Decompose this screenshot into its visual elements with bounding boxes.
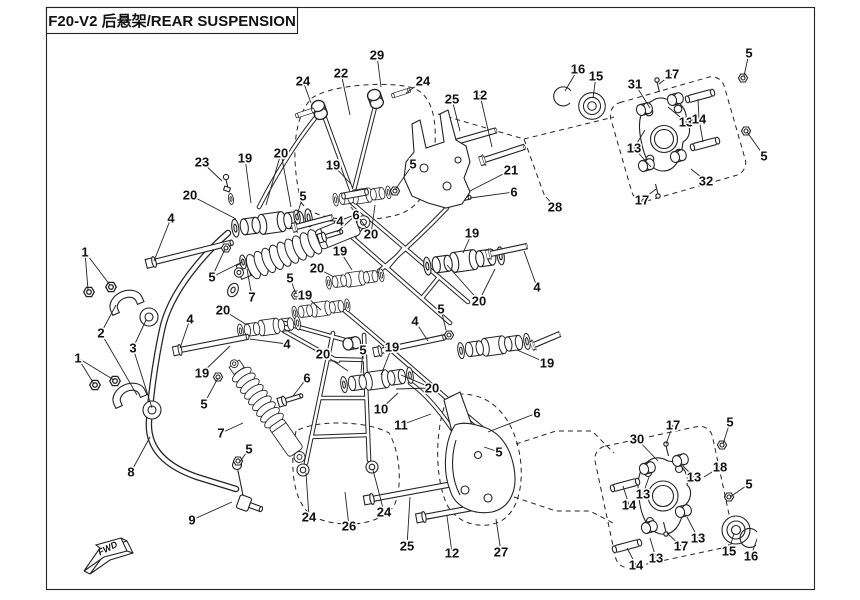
leader-line [470, 192, 514, 198]
callout-label-15: 15 [589, 69, 603, 84]
callout-label-8: 8 [127, 465, 134, 480]
callout-label-19: 19 [465, 226, 479, 241]
callout-label-15: 15 [722, 544, 736, 559]
callout-label-17: 17 [635, 193, 649, 208]
assembly-line-lower-1 [516, 431, 614, 453]
assembly-line-lower-2 [514, 497, 613, 523]
knuckle-assembly-upper [554, 74, 749, 205]
callout-label-19: 19 [385, 340, 399, 355]
callout-label-5: 5 [245, 442, 252, 457]
callout-label-4: 4 [411, 314, 419, 329]
callout-label-28: 28 [548, 200, 562, 215]
callout-label-20: 20 [274, 146, 288, 161]
callout-label-13: 13 [649, 551, 663, 566]
callout-label-13: 13 [636, 487, 650, 502]
callout-label-21: 21 [504, 163, 518, 178]
callout-label-19: 19 [326, 158, 340, 173]
callout-label-13: 13 [691, 531, 705, 546]
rear-suspension-diagram: F20-V2 后悬架/REAR SUSPENSION [0, 0, 860, 600]
title-block: F20-V2 后悬架/REAR SUSPENSION [47, 8, 298, 34]
circlip-upper [554, 87, 571, 106]
callout-label-5: 5 [286, 271, 293, 286]
leader-line [133, 348, 152, 408]
callout-label-10: 10 [374, 402, 388, 417]
assembly-line-upper-2 [524, 117, 614, 139]
callout-label-24: 24 [296, 74, 311, 89]
leader-line [488, 413, 537, 432]
callout-label-6: 6 [533, 406, 540, 421]
callout-label-31: 31 [628, 77, 642, 92]
leader-line [85, 252, 110, 285]
callout-label-14: 14 [629, 558, 644, 573]
callout-label-5: 5 [760, 149, 767, 164]
callout-label-20: 20 [316, 347, 330, 362]
callout-label-13: 13 [627, 141, 641, 156]
callout-label-32: 32 [699, 174, 713, 189]
callout-label-3: 3 [129, 341, 136, 356]
callout-label-12: 12 [445, 546, 459, 561]
callout-label-5: 5 [437, 302, 444, 317]
spacer-24-left [295, 108, 315, 118]
callout-label-6: 6 [352, 208, 359, 223]
callout-label-4: 4 [167, 211, 175, 226]
pivot-bushing-clusters [231, 185, 532, 394]
callout-label-5: 5 [200, 397, 207, 412]
bearing-upper [579, 93, 606, 120]
callout-label-5: 5 [299, 189, 306, 204]
callout-label-24: 24 [302, 510, 317, 525]
callout-label-2: 2 [97, 326, 104, 341]
callout-label-20: 20 [364, 227, 378, 242]
callout-label-19: 19 [195, 366, 209, 381]
callout-label-4: 4 [186, 312, 194, 327]
callout-label-19: 19 [540, 356, 554, 371]
callout-label-1: 1 [74, 351, 81, 366]
callout-label-18: 18 [713, 460, 727, 475]
callout-label-23: 23 [195, 155, 209, 170]
callout-label-19: 19 [238, 151, 252, 166]
callout-label-24: 24 [377, 505, 392, 520]
callout-label-14: 14 [622, 498, 637, 513]
callout-label-27: 27 [494, 545, 508, 560]
callout-label-20: 20 [183, 188, 197, 203]
callout-label-19: 19 [333, 244, 347, 259]
page-title: F20-V2 后悬架/REAR SUSPENSION [48, 12, 296, 30]
callout-label-5: 5 [726, 415, 733, 430]
callout-label-17: 17 [665, 67, 679, 82]
callout-label-17: 17 [666, 418, 680, 433]
callout-label-6: 6 [303, 371, 310, 386]
callout-label-5: 5 [495, 445, 502, 460]
leader-line [480, 95, 492, 147]
callout-label-26: 26 [342, 519, 356, 534]
callout-label-4: 4 [283, 337, 291, 352]
callout-label-17: 17 [674, 539, 688, 554]
bushing-lower [143, 401, 161, 419]
callout-label-5: 5 [409, 157, 416, 172]
fwd-arrow: FWD [84, 538, 133, 574]
callout-label-16: 16 [744, 549, 758, 564]
callout-label-12: 12 [473, 88, 487, 103]
callout-label-22: 22 [334, 66, 348, 81]
callout-label-20: 20 [425, 381, 439, 396]
callout-label-20: 20 [216, 303, 230, 318]
callout-label-4: 4 [533, 280, 541, 295]
grease-fitting [223, 174, 234, 204]
callout-label-5: 5 [745, 46, 752, 61]
callout-label-13: 13 [687, 470, 701, 485]
callout-label-29: 29 [370, 48, 384, 63]
parts-diagram-page: F20-V2 后悬架/REAR SUSPENSION [0, 0, 860, 600]
callout-label-11: 11 [394, 418, 408, 433]
callout-label-14: 14 [692, 112, 707, 127]
shock-absorber-lower [223, 354, 312, 467]
leader-line [250, 339, 287, 344]
stabilizer-bar [149, 233, 241, 489]
spacer-24-right [391, 88, 411, 98]
callout-label-9: 9 [188, 513, 195, 528]
callout-label-5: 5 [745, 477, 752, 492]
callout-label-6: 6 [510, 185, 517, 200]
callout-label-20: 20 [310, 261, 324, 276]
callout-label-7: 7 [217, 426, 224, 441]
callout-label-5: 5 [208, 270, 215, 285]
callout-label-7: 7 [248, 290, 255, 305]
bushing-upper [140, 308, 158, 326]
leader-line [78, 358, 114, 380]
callout-label-25: 25 [400, 539, 414, 554]
leader-line [192, 502, 232, 520]
callout-label-5: 5 [359, 343, 366, 358]
callout-label-4: 4 [336, 214, 344, 229]
bearing-lower [722, 516, 750, 544]
leader-line [266, 153, 281, 205]
callout-label-16: 16 [571, 62, 585, 77]
callout-label-1: 1 [81, 245, 88, 260]
callout-label-24: 24 [416, 74, 431, 89]
knuckle-bracket-27 [444, 392, 515, 513]
callout-label-20: 20 [472, 294, 486, 309]
callout-label-30: 30 [630, 432, 644, 447]
callout-label-19: 19 [298, 288, 312, 303]
callout-label-25: 25 [445, 92, 459, 107]
